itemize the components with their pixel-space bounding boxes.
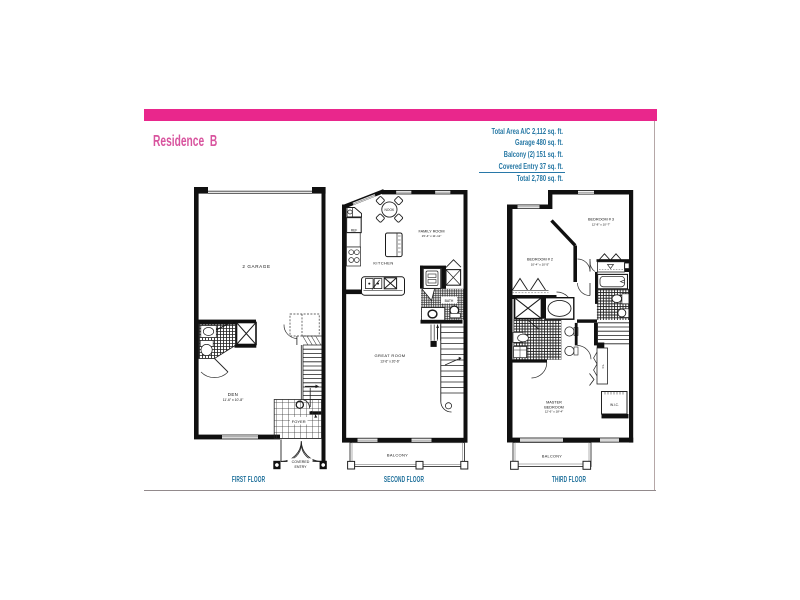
svg-text:13'-6" x 20'-6": 13'-6" x 20'-6" — [380, 359, 400, 363]
svg-text:10'-4" x 10'-5": 10'-4" x 10'-5" — [531, 262, 549, 266]
svg-text:ENTRY: ENTRY — [294, 465, 307, 469]
svg-text:KITCHEN: KITCHEN — [373, 261, 393, 266]
svg-text:MASTER: MASTER — [546, 401, 562, 405]
svg-text:REF: REF — [351, 229, 357, 233]
svg-text:12'-8" x 10'-7": 12'-8" x 10'-7" — [592, 222, 610, 226]
svg-text:2 GARAGE: 2 GARAGE — [242, 264, 270, 269]
svg-text:BATH: BATH — [445, 299, 454, 303]
svg-text:BALCONY: BALCONY — [387, 452, 408, 457]
svg-text:FOYER: FOYER — [292, 419, 306, 424]
svg-text:DEN: DEN — [228, 392, 238, 397]
svg-text:15'-4" x 11'-11": 15'-4" x 11'-11" — [422, 234, 442, 238]
svg-text:12'-6" x 18'-4": 12'-6" x 18'-4" — [545, 410, 563, 414]
svg-text:BEDROOM # 2: BEDROOM # 2 — [527, 258, 553, 262]
svg-text:FAMILY ROOM: FAMILY ROOM — [418, 230, 444, 234]
svg-text:BALCONY: BALCONY — [542, 455, 562, 459]
svg-text:BEDROOM # 3: BEDROOM # 3 — [588, 218, 614, 222]
svg-text:NOOK: NOOK — [385, 208, 396, 212]
svg-text:W.I.C.: W.I.C. — [610, 403, 619, 407]
svg-text:BEDROOM: BEDROOM — [544, 405, 564, 409]
svg-text:COVERED: COVERED — [292, 460, 310, 464]
svg-text:11'-6" x 10'-8": 11'-6" x 10'-8" — [223, 398, 244, 402]
svg-text:CL.: CL. — [601, 364, 605, 369]
svg-text:GREAT ROOM: GREAT ROOM — [375, 353, 406, 358]
